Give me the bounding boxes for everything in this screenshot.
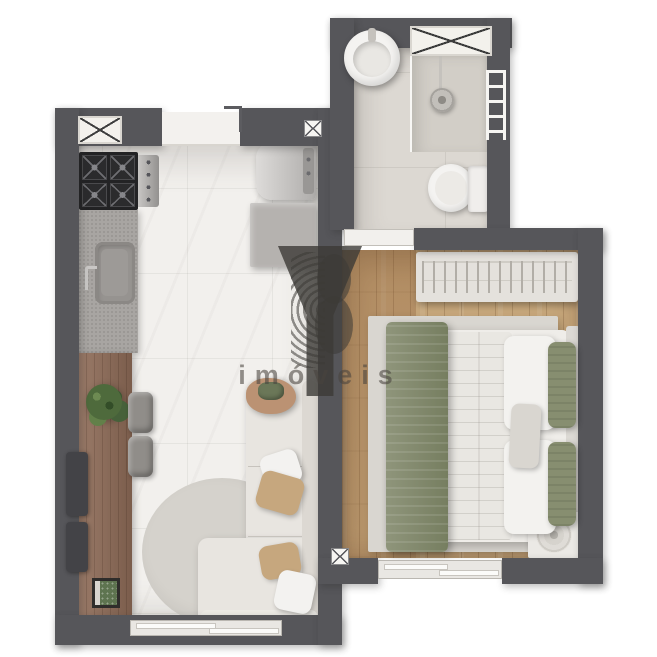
wall-bedroom-top: [414, 228, 603, 250]
window-pane: [136, 623, 216, 629]
bathroom-window-icon: [410, 26, 492, 56]
burner-icon: [110, 155, 135, 180]
tucked-chair: [66, 522, 88, 572]
bed-pillow-gray: [508, 403, 541, 468]
bathroom-faucet-icon: [368, 28, 376, 42]
living-room-window: [130, 620, 282, 636]
sink-basin: [353, 41, 391, 77]
wall-bedroom-bottom-right: [502, 558, 603, 584]
window-pane: [209, 628, 279, 634]
fridge-control-panel: [303, 148, 314, 194]
floor-plan: YBY imóveis: [0, 0, 657, 657]
bedroom-window: [378, 560, 502, 579]
kitchen-window-icon: [78, 116, 122, 144]
burner-icon: [110, 183, 135, 208]
bed-pillow-green: [548, 442, 576, 526]
shower-head-icon: [430, 88, 454, 112]
sink-basin: [101, 249, 128, 296]
ac-unit-icon: [331, 548, 349, 565]
refrigerator: [256, 142, 316, 200]
ac-unit-icon: [304, 120, 322, 137]
wall-bedroom-right: [578, 228, 603, 584]
tucked-chair: [66, 452, 88, 516]
entry-door-frame: [224, 106, 242, 132]
wardrobe-rack: [416, 252, 578, 302]
kitchen-faucet-icon: [85, 266, 97, 290]
side-table-decor: [258, 382, 284, 400]
green-blanket: [386, 322, 448, 552]
counter-stool: [128, 436, 153, 477]
book: [92, 578, 120, 608]
burner-icon: [82, 155, 107, 180]
counter-stool: [128, 392, 153, 433]
potted-plant: [86, 384, 122, 420]
towel-rack-icon: [486, 70, 506, 140]
toilet-seat: [435, 171, 467, 205]
duvet: [446, 332, 512, 540]
sofa-cushion-seam: [248, 536, 302, 537]
burner-icon: [82, 183, 107, 208]
kitchen-cabinet: [250, 203, 316, 267]
bathroom-door: [344, 229, 414, 246]
gas-cooktop: [79, 152, 138, 210]
hanger-rail: [422, 261, 572, 293]
toilet-tank: [468, 166, 488, 212]
window-pane: [439, 570, 499, 576]
cooktop-control-panel: [138, 155, 159, 207]
kitchen-sink: [95, 242, 135, 304]
bed-pillow-green: [548, 342, 576, 428]
